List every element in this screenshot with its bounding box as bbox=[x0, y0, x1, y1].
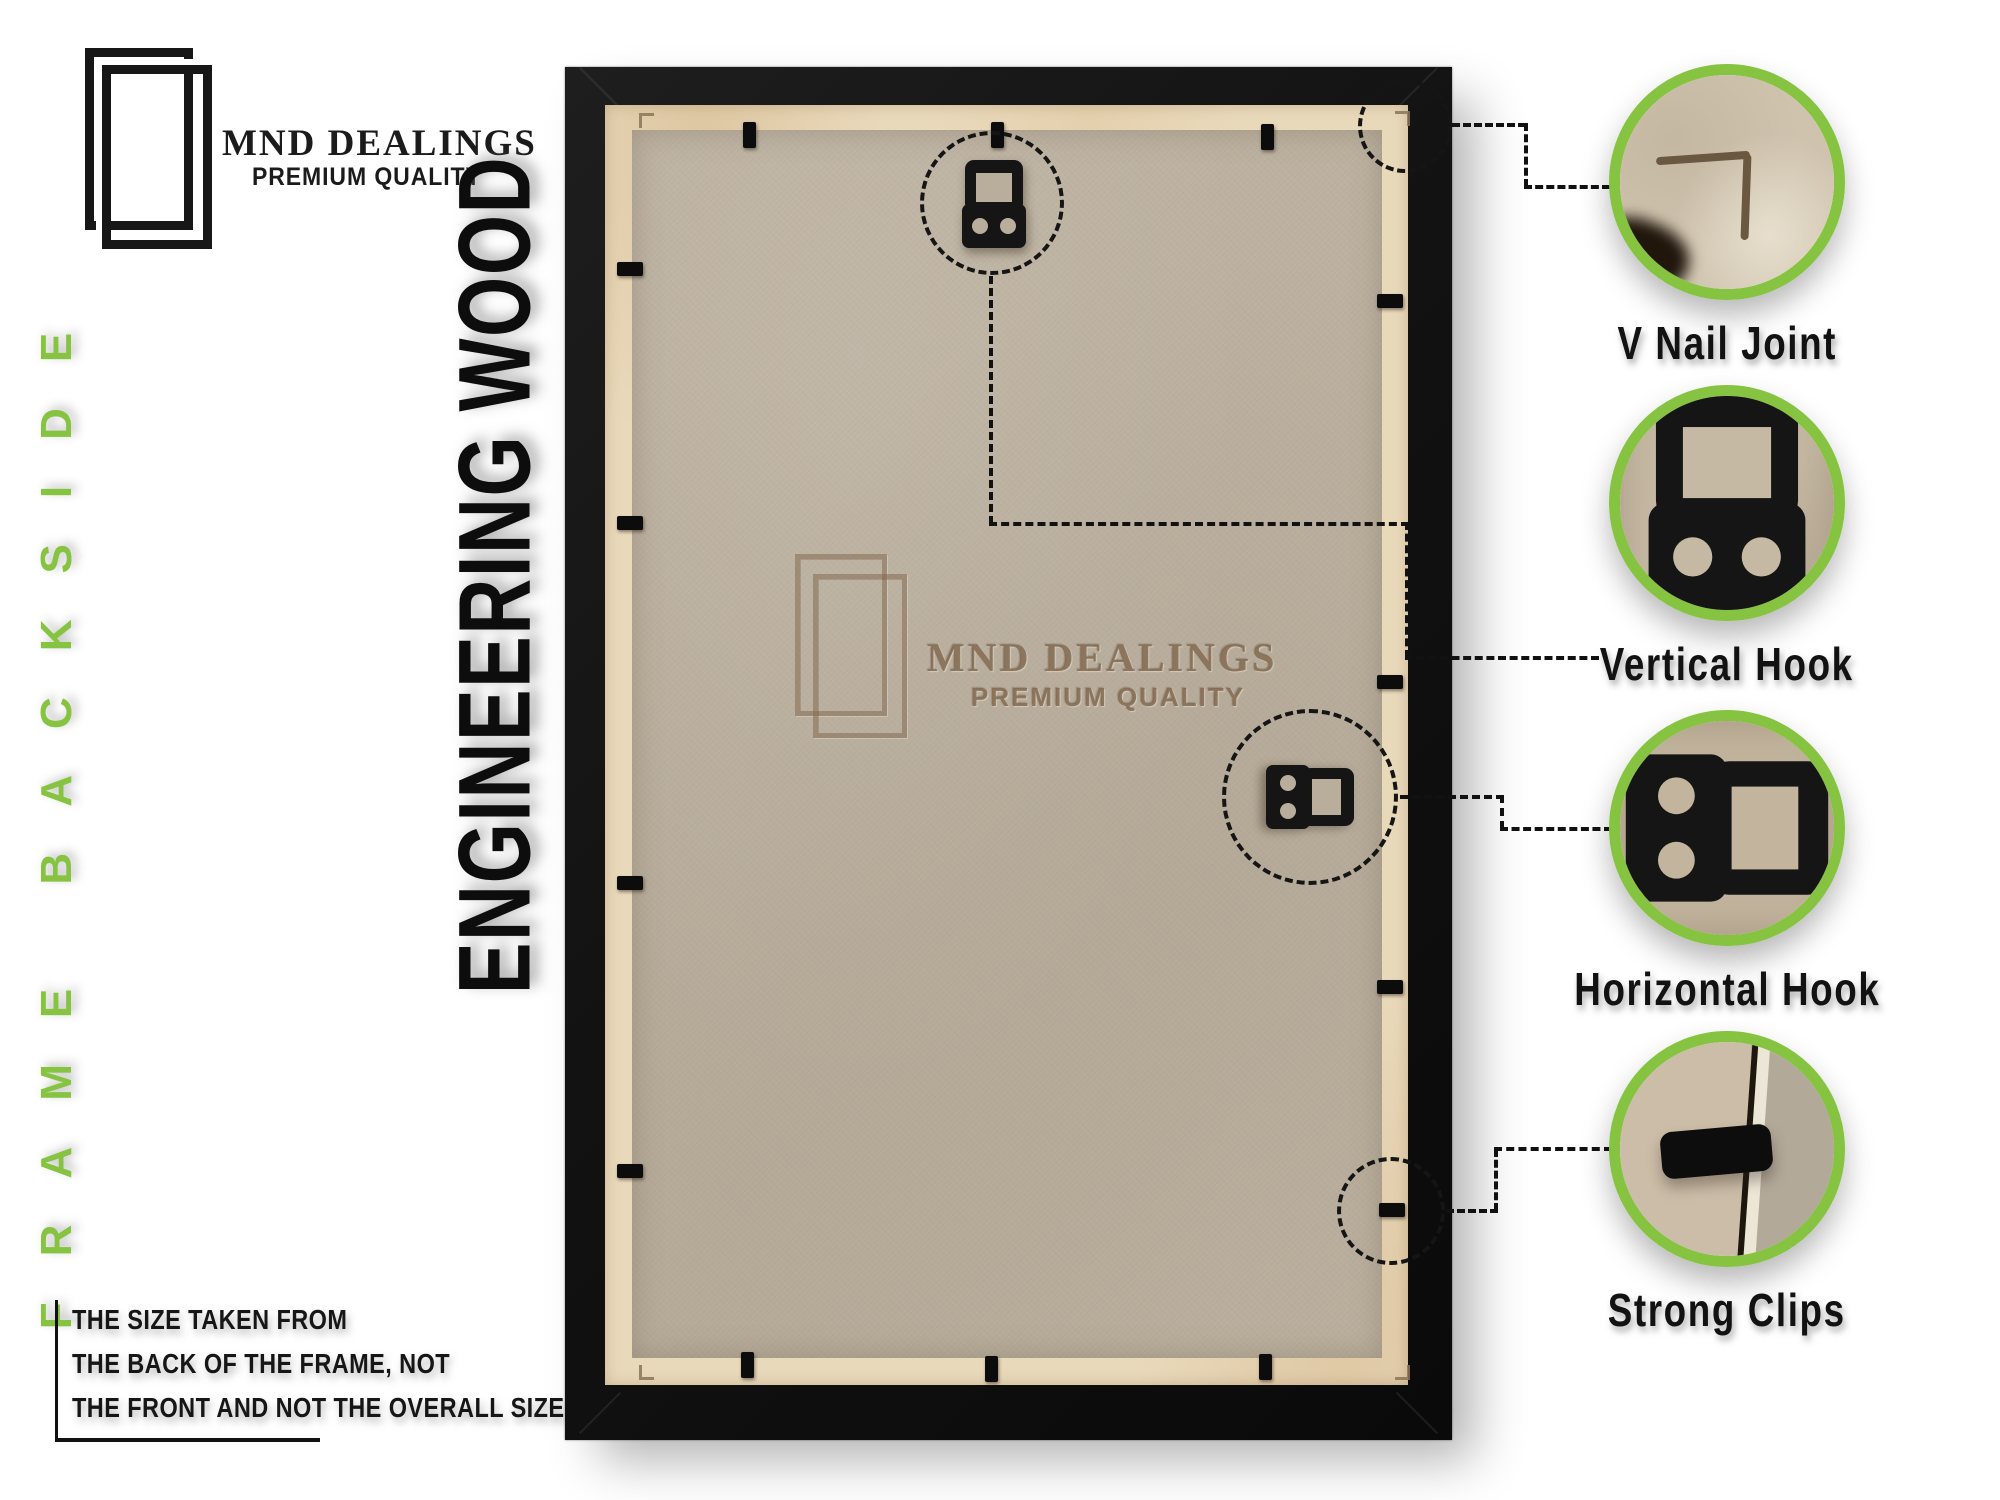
strong-clip-annotation-circle bbox=[1337, 1157, 1445, 1265]
connector-line bbox=[1405, 522, 1409, 658]
v-nail-corner-mark bbox=[639, 113, 654, 128]
connector-line bbox=[1500, 827, 1612, 831]
wood-corner-photo bbox=[1620, 75, 1834, 289]
watermark-name: MND DEALINGS bbox=[927, 634, 1277, 681]
backing-clip bbox=[617, 876, 643, 890]
connector-line bbox=[1446, 1209, 1498, 1213]
backing-clip bbox=[1377, 294, 1403, 308]
note-line-2: THE BACK OF THE FRAME, NOT bbox=[72, 1348, 450, 1380]
strong-clip-icon bbox=[1659, 1123, 1774, 1180]
frame-backside-label: FRAME BACKSIDE bbox=[32, 287, 82, 1329]
v-nail-corner-mark bbox=[1395, 1365, 1410, 1380]
callout-label: Strong Clips bbox=[1609, 1283, 1845, 1337]
backing-clip bbox=[617, 262, 643, 276]
callout-label: V Nail Joint bbox=[1609, 316, 1845, 370]
note-line-1: THE SIZE TAKEN FROM bbox=[72, 1304, 347, 1336]
frame-backside-infographic: MND DEALINGS PREMIUM QUALITY FRAME BACKS… bbox=[0, 0, 2000, 1500]
horizontal-hook-annotation-circle bbox=[1222, 709, 1398, 885]
backing-clip bbox=[1261, 124, 1274, 150]
note-line-3: THE FRONT AND NOT THE OVERALL SIZE. bbox=[72, 1392, 571, 1424]
hook-photo-background bbox=[1620, 396, 1834, 610]
clip-photo-background bbox=[1620, 1042, 1834, 1256]
callout-v-nail-joint: V Nail Joint bbox=[1609, 64, 1845, 370]
hook-screw-hole bbox=[1673, 537, 1712, 576]
horizontal-hook-photo bbox=[1609, 710, 1845, 946]
miter-line bbox=[1396, 1392, 1438, 1434]
callout-horizontal-hook: Horizontal Hook bbox=[1609, 710, 1845, 1016]
frame-logo-icon bbox=[85, 48, 235, 258]
vertical-hook-annotation-circle bbox=[920, 131, 1064, 275]
note-vertical-rule bbox=[55, 1300, 58, 1440]
hook-screw-hole bbox=[1742, 537, 1781, 576]
connector-line bbox=[1500, 795, 1504, 829]
vertical-hook-photo bbox=[1609, 385, 1845, 621]
watermark-tagline: PREMIUM QUALITY bbox=[971, 682, 1245, 713]
backing-clip bbox=[985, 1356, 998, 1382]
backing-clip bbox=[1377, 980, 1403, 994]
connector-line bbox=[1524, 185, 1610, 189]
connector-line bbox=[1405, 656, 1599, 660]
v-nail-joint-photo bbox=[1609, 64, 1845, 300]
callout-strong-clips: Strong Clips bbox=[1609, 1031, 1845, 1337]
backing-clip bbox=[617, 516, 643, 530]
hook-plate bbox=[1649, 503, 1806, 611]
watermark-logo-icon bbox=[813, 574, 907, 738]
backing-clip bbox=[1377, 675, 1403, 689]
corner-shadow bbox=[1609, 205, 1699, 300]
connector-line bbox=[1494, 1149, 1498, 1211]
callout-label: Vertical Hook bbox=[1609, 637, 1845, 691]
v-nail-groove bbox=[1740, 154, 1751, 240]
connector-line bbox=[1524, 123, 1528, 187]
v-nail-corner-mark bbox=[639, 1365, 654, 1380]
connector-line bbox=[1400, 795, 1504, 799]
horizontal-hook-icon bbox=[1626, 754, 1828, 901]
callout-label: Horizontal Hook bbox=[1609, 962, 1845, 1016]
hook-screw-hole bbox=[1658, 777, 1695, 814]
corner-joint-annotation-circle bbox=[1358, 79, 1452, 173]
hook-plate bbox=[1626, 754, 1727, 901]
strong-clips-photo bbox=[1609, 1031, 1845, 1267]
logo-front-rectangle bbox=[102, 65, 212, 249]
connector-line bbox=[989, 276, 993, 524]
connector-line bbox=[1452, 123, 1526, 127]
hook-photo-background bbox=[1620, 721, 1834, 935]
backing-clip bbox=[617, 1164, 643, 1178]
callout-vertical-hook: Vertical Hook bbox=[1609, 385, 1845, 691]
note-horizontal-rule bbox=[55, 1438, 320, 1442]
connector-line bbox=[1494, 1147, 1612, 1151]
backing-clip bbox=[741, 1352, 754, 1378]
v-nail-groove bbox=[1656, 151, 1750, 166]
backing-clip bbox=[743, 122, 756, 148]
vertical-hook-icon bbox=[1649, 395, 1806, 611]
backing-clip bbox=[1259, 1354, 1272, 1380]
engineering-wood-label: ENGINEERING WOOD bbox=[437, 156, 554, 994]
miter-line bbox=[579, 1392, 621, 1434]
embossed-watermark: MND DEALINGS PREMIUM QUALITY bbox=[795, 554, 1235, 844]
miter-line bbox=[579, 67, 621, 109]
connector-line bbox=[989, 522, 1409, 526]
hook-screw-hole bbox=[1658, 842, 1695, 879]
